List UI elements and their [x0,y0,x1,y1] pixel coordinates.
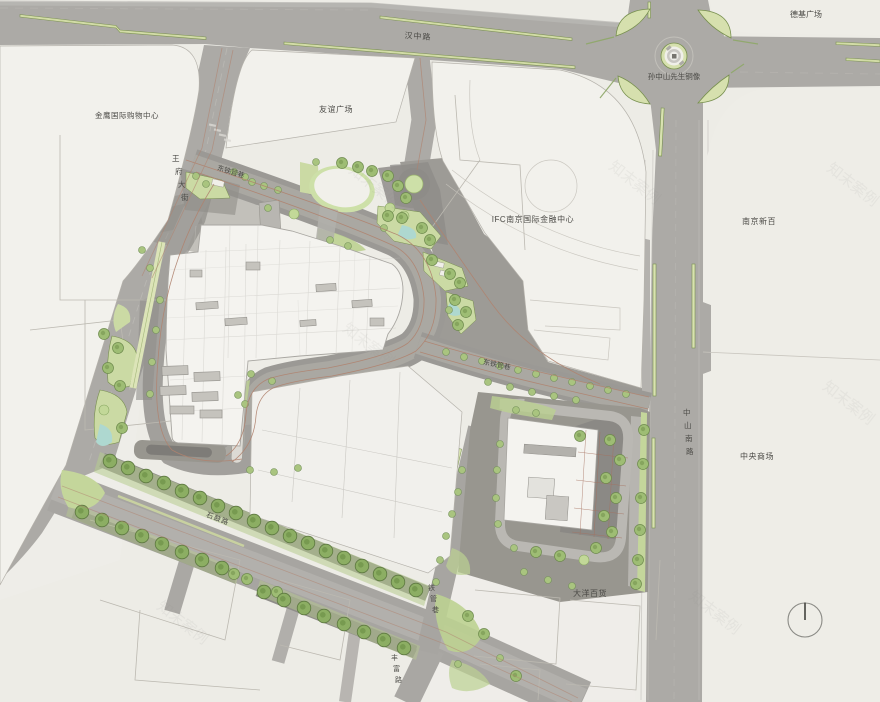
svg-text:金鹰国际购物中心: 金鹰国际购物中心 [95,110,159,120]
svg-text:南京新百: 南京新百 [742,216,776,226]
svg-text:王: 王 [172,154,180,163]
svg-text:孙中山先生铜像: 孙中山先生铜像 [648,71,701,81]
svg-text:街: 街 [181,192,189,202]
svg-text:大: 大 [178,179,186,189]
svg-text:IFC南京国际金融中心: IFC南京国际金融中心 [492,214,574,224]
svg-text:丰: 丰 [391,653,398,662]
svg-text:富: 富 [393,664,400,673]
svg-text:山: 山 [684,420,692,430]
svg-text:大洋百货: 大洋百货 [573,588,607,598]
svg-text:铁: 铁 [428,583,435,592]
svg-text:巷: 巷 [432,606,439,614]
svg-text:中央商场: 中央商场 [740,451,774,461]
svg-text:路: 路 [395,675,402,684]
svg-text:管: 管 [430,594,437,603]
svg-text:南: 南 [685,433,693,443]
svg-text:路: 路 [686,446,694,456]
svg-text:汉中路: 汉中路 [404,30,432,42]
svg-text:府: 府 [175,166,183,176]
svg-text:友谊广场: 友谊广场 [319,104,353,114]
svg-text:德基广场: 德基广场 [790,9,822,19]
svg-text:中: 中 [683,407,691,417]
